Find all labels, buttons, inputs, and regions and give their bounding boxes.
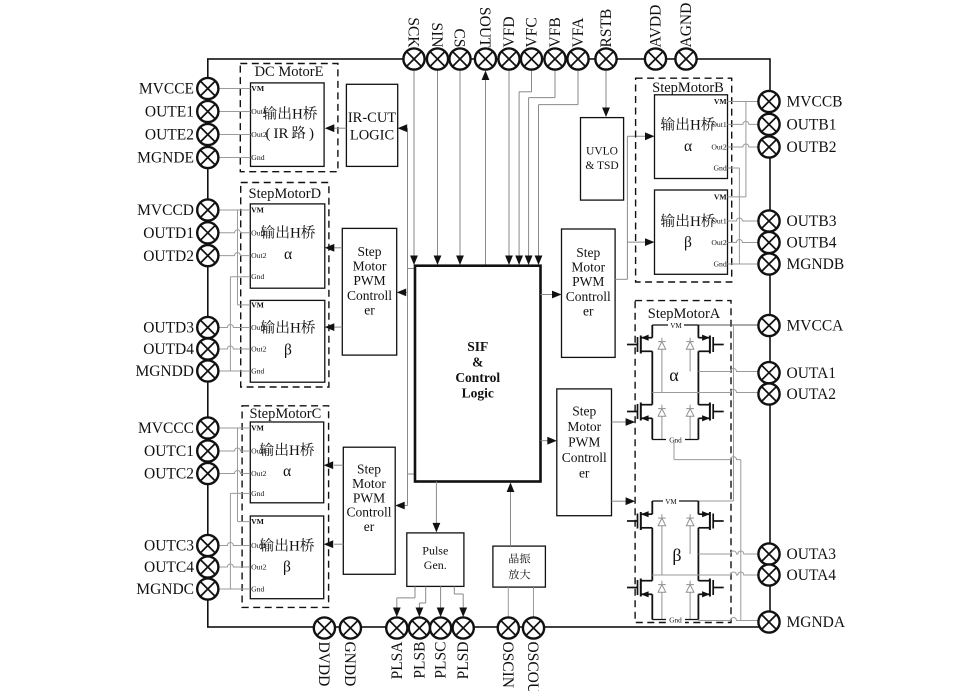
svg-text:StepMotorC: StepMotorC xyxy=(250,406,322,422)
svg-text:MVCCB: MVCCB xyxy=(787,94,843,111)
svg-text:MGNDB: MGNDB xyxy=(787,256,845,273)
svg-text:Out2: Out2 xyxy=(251,345,267,354)
svg-text:PLSB: PLSB xyxy=(411,642,428,679)
svg-text:Step: Step xyxy=(357,244,381,259)
svg-text:Gen.: Gen. xyxy=(424,558,447,572)
svg-text:MVCCC: MVCCC xyxy=(138,420,194,437)
svg-text:OUTE2: OUTE2 xyxy=(145,127,194,144)
svg-text:PLSA: PLSA xyxy=(389,641,406,680)
svg-text:PLSD: PLSD xyxy=(455,642,472,680)
svg-text:H: H xyxy=(690,214,701,230)
svg-text:Logic: Logic xyxy=(462,386,494,401)
svg-text:SOUT: SOUT xyxy=(476,7,493,48)
svg-text:DVDD: DVDD xyxy=(315,642,332,687)
svg-text:MGNDA: MGNDA xyxy=(787,614,846,631)
svg-text:& TSD: & TSD xyxy=(585,160,618,172)
svg-text:Step: Step xyxy=(357,462,381,477)
svg-text:er: er xyxy=(579,466,590,481)
svg-text:PWM: PWM xyxy=(568,435,600,450)
svg-text:Controll: Controll xyxy=(347,288,392,303)
svg-text:Out2: Out2 xyxy=(711,238,727,247)
svg-text:StepMotorB: StepMotorB xyxy=(652,80,724,96)
svg-text:Gnd: Gnd xyxy=(251,272,264,281)
svg-text:PWM: PWM xyxy=(353,273,385,288)
svg-text:H: H xyxy=(690,118,701,134)
svg-text:OUTB2: OUTB2 xyxy=(787,139,837,156)
svg-text:VFB: VFB xyxy=(547,17,564,47)
svg-text:MVCCD: MVCCD xyxy=(137,202,194,219)
svg-text:er: er xyxy=(583,303,594,318)
svg-text:VM: VM xyxy=(714,97,728,106)
svg-text:MGNDE: MGNDE xyxy=(137,150,194,167)
svg-text:er: er xyxy=(364,519,375,534)
svg-text:AGND: AGND xyxy=(678,3,695,48)
svg-text:VM: VM xyxy=(251,300,265,309)
svg-text:Gnd: Gnd xyxy=(251,489,264,498)
svg-text:VM: VM xyxy=(665,498,677,506)
svg-text:Motor: Motor xyxy=(567,419,601,434)
svg-text:): ) xyxy=(309,126,314,142)
svg-text:OUTC3: OUTC3 xyxy=(144,538,194,555)
svg-text:SCK: SCK xyxy=(405,17,422,48)
svg-text:Step: Step xyxy=(576,245,600,260)
svg-text:OSCIN: OSCIN xyxy=(499,642,516,689)
svg-text:Gnd: Gnd xyxy=(713,164,726,173)
svg-text:β: β xyxy=(284,342,292,359)
svg-text:AVDD: AVDD xyxy=(648,5,665,48)
svg-text:OUTB4: OUTB4 xyxy=(787,235,837,252)
svg-text:VFC: VFC xyxy=(524,17,541,47)
svg-text:Out2: Out2 xyxy=(711,143,727,152)
svg-text:Pulse: Pulse xyxy=(422,544,448,558)
svg-text:Motor: Motor xyxy=(571,260,605,275)
svg-text:Controll: Controll xyxy=(562,450,607,465)
svg-text:Gnd: Gnd xyxy=(251,153,264,162)
svg-text:MGNDD: MGNDD xyxy=(135,363,194,380)
svg-text:Gnd: Gnd xyxy=(713,260,726,269)
svg-text:OUTB3: OUTB3 xyxy=(787,213,837,230)
svg-text:H: H xyxy=(289,443,300,459)
svg-text:IR-CUT: IR-CUT xyxy=(348,110,396,126)
svg-text:OUTD2: OUTD2 xyxy=(143,248,194,265)
svg-text:&: & xyxy=(472,355,483,370)
svg-text:GNDD: GNDD xyxy=(341,642,358,687)
svg-text:VFD: VFD xyxy=(501,16,518,47)
svg-text:OUTA4: OUTA4 xyxy=(787,567,837,584)
svg-text:Step: Step xyxy=(572,403,596,418)
svg-text:MGNDC: MGNDC xyxy=(136,581,194,598)
svg-text:PLSC: PLSC xyxy=(433,642,450,679)
svg-text:VM: VM xyxy=(251,206,265,215)
svg-text:OUTA1: OUTA1 xyxy=(787,365,837,382)
svg-text:OUTA3: OUTA3 xyxy=(787,546,837,563)
svg-text:DC MotorE: DC MotorE xyxy=(255,64,324,80)
svg-text:Gnd: Gnd xyxy=(251,367,264,376)
svg-text:Motor: Motor xyxy=(352,476,386,491)
svg-text:OUTA2: OUTA2 xyxy=(787,386,837,403)
svg-text:Out1: Out1 xyxy=(251,541,267,550)
svg-text:OUTD3: OUTD3 xyxy=(143,320,194,337)
svg-text:StepMotorA: StepMotorA xyxy=(648,306,721,322)
svg-text:VM: VM xyxy=(251,424,265,433)
svg-text:β: β xyxy=(684,234,692,251)
svg-text:VM: VM xyxy=(670,322,682,330)
svg-text:Out1: Out1 xyxy=(251,228,267,237)
svg-text:Out1: Out1 xyxy=(251,447,267,456)
svg-text:α: α xyxy=(669,365,679,385)
svg-text:er: er xyxy=(364,302,375,317)
svg-text:IR: IR xyxy=(274,126,289,142)
svg-text:OSCOUT: OSCOUT xyxy=(524,642,541,691)
svg-text:OUTE1: OUTE1 xyxy=(145,104,194,121)
svg-text:α: α xyxy=(283,463,291,480)
svg-text:SIF: SIF xyxy=(467,339,488,354)
svg-text:OUTC2: OUTC2 xyxy=(144,466,194,483)
svg-text:β: β xyxy=(672,545,681,565)
svg-text:VM: VM xyxy=(251,517,265,526)
svg-text:Gnd: Gnd xyxy=(251,585,264,594)
svg-text:OUTD1: OUTD1 xyxy=(143,225,194,242)
svg-text:Out2: Out2 xyxy=(251,469,267,478)
svg-text:Controll: Controll xyxy=(566,289,611,304)
svg-text:Motor: Motor xyxy=(353,259,387,274)
svg-text:MVCCE: MVCCE xyxy=(139,81,194,98)
svg-text:Out2: Out2 xyxy=(251,251,267,260)
svg-text:RSTB: RSTB xyxy=(598,9,615,48)
svg-text:OUTB1: OUTB1 xyxy=(787,117,837,134)
svg-text:Out2: Out2 xyxy=(251,130,267,139)
svg-text:Control: Control xyxy=(455,370,500,385)
svg-text:Out2: Out2 xyxy=(251,563,267,572)
svg-text:VFA: VFA xyxy=(570,17,587,48)
svg-text:OUTD4: OUTD4 xyxy=(143,341,194,358)
svg-text:Controll: Controll xyxy=(346,505,391,520)
svg-text:VM: VM xyxy=(251,84,265,93)
svg-text:H: H xyxy=(290,226,301,242)
svg-text:Gnd: Gnd xyxy=(669,617,682,625)
svg-text:OUTC1: OUTC1 xyxy=(144,443,194,460)
svg-text:H: H xyxy=(290,321,301,337)
svg-text:LOGIC: LOGIC xyxy=(350,128,394,144)
svg-text:PWM: PWM xyxy=(572,274,604,289)
svg-text:SIN: SIN xyxy=(428,23,445,48)
svg-text:H: H xyxy=(289,539,300,555)
svg-text:VM: VM xyxy=(714,192,728,201)
svg-text:β: β xyxy=(283,559,291,576)
svg-text:MVCCA: MVCCA xyxy=(787,318,845,335)
svg-text:Gnd: Gnd xyxy=(669,437,682,445)
svg-text:α: α xyxy=(284,246,292,263)
svg-text:H: H xyxy=(292,107,303,123)
svg-text:PWM: PWM xyxy=(353,490,385,505)
svg-text:CS: CS xyxy=(451,29,468,48)
svg-text:StepMotorD: StepMotorD xyxy=(249,186,322,202)
svg-text:α: α xyxy=(684,138,692,155)
svg-text:UVLO: UVLO xyxy=(586,146,618,158)
svg-text:OUTC4: OUTC4 xyxy=(144,559,194,576)
svg-text:(: ( xyxy=(266,126,271,142)
